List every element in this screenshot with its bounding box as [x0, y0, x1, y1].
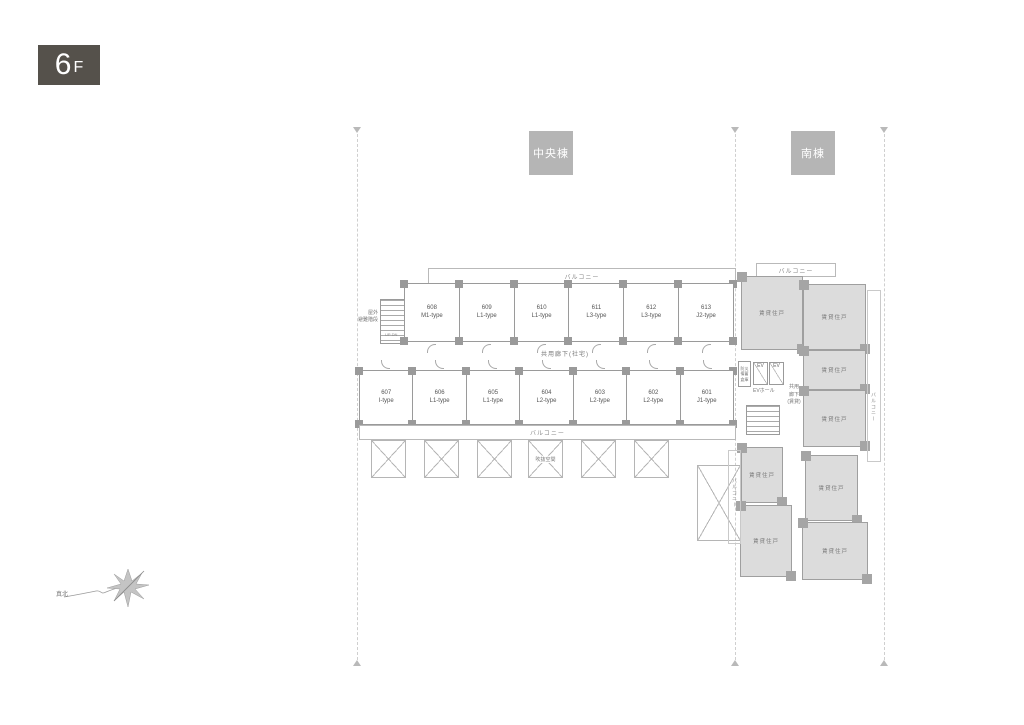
door-arc-icon — [482, 344, 491, 353]
elevator-2: EV — [769, 362, 784, 385]
unit-type: L1-type — [483, 398, 503, 405]
void-box: 吹抜空間 — [528, 440, 563, 478]
void-box — [634, 440, 669, 478]
unit-605: 605 L1-type — [466, 371, 519, 424]
door-arc-icon — [435, 360, 444, 369]
door-arc-icon — [381, 360, 390, 369]
unit-number: 611 — [592, 304, 602, 313]
rental-unit: 賃貸住戸 — [740, 505, 792, 577]
core-stairs — [746, 405, 780, 435]
floor-badge: 6 F — [38, 45, 100, 85]
central-top-balcony: バルコニー — [428, 268, 736, 284]
stairs-updn-label: UP DN — [385, 332, 397, 337]
door-arc-icon — [647, 344, 656, 353]
unit-type: L2-type — [536, 398, 556, 405]
guide-arrow-icon — [731, 127, 739, 133]
unit-number: 613 — [701, 304, 711, 313]
unit-610: 610 L1-type — [514, 284, 569, 341]
rental-unit: 賃貸住戸 — [802, 522, 868, 580]
unit-607: 607 I-type — [360, 371, 412, 424]
floor-plan-page: 6 F 中央棟 南棟 バルコニー 屋外 避難階段 UP DN 608 M1-ty… — [0, 0, 1024, 725]
unit-number: 608 — [427, 304, 437, 313]
unit-602: 602 L2-type — [626, 371, 679, 424]
void-box — [371, 440, 406, 478]
unit-type: I-type — [379, 398, 394, 405]
unit-609: 609 L1-type — [459, 284, 514, 341]
door-arc-icon — [703, 360, 712, 369]
unit-number: 609 — [482, 304, 492, 313]
rental-unit: 賃貸住戸 — [805, 455, 858, 521]
rental-unit: 賃貸住戸 — [803, 350, 866, 390]
unit-number: 610 — [537, 304, 547, 313]
section-label-central: 中央棟 — [529, 131, 573, 175]
unit-type: L1-type — [532, 313, 552, 320]
void-box — [424, 440, 459, 478]
unit-number: 603 — [595, 389, 605, 398]
floor-suffix: F — [73, 60, 83, 76]
storage-room: 防災 備蓄 倉庫 — [738, 361, 751, 387]
guide-line-left — [357, 134, 358, 660]
floor-number: 6 — [55, 50, 72, 80]
guide-arrow-icon — [880, 660, 888, 666]
guide-arrow-icon — [353, 127, 361, 133]
south-top-balcony: バルコニー — [756, 263, 836, 277]
unit-type: L1-type — [430, 398, 450, 405]
rental-unit: 賃貸住戸 — [803, 284, 866, 350]
central-bottom-balcony: バルコニー — [359, 425, 736, 440]
unit-number: 605 — [488, 389, 498, 398]
unit-type: L2-type — [643, 398, 663, 405]
void-box — [477, 440, 512, 478]
corridor-label: 共用廊下(社宅) — [541, 349, 589, 358]
unit-type: J2-type — [696, 313, 716, 320]
ev-hall-label: EVホール — [753, 387, 775, 394]
guide-arrow-icon — [880, 127, 888, 133]
unit-604: 604 L2-type — [519, 371, 572, 424]
door-arc-icon — [649, 360, 658, 369]
balcony-label-vertical: バルコニー — [731, 478, 738, 508]
door-arc-icon — [592, 344, 601, 353]
unit-number: 612 — [646, 304, 656, 313]
unit-number: 604 — [541, 389, 551, 398]
south-right-balcony — [867, 290, 881, 462]
unit-613: 613 J2-type — [678, 284, 733, 341]
elevator-1: EV — [753, 362, 768, 385]
void-label: 吹抜空間 — [534, 456, 556, 463]
unit-type: L1-type — [477, 313, 497, 320]
unit-type: L3-type — [641, 313, 661, 320]
unit-type: M1-type — [421, 313, 443, 320]
central-bottom-row: 607 I-type 606 L1-type 605 L1-type 604 L… — [359, 370, 734, 425]
true-north-label: 真北 — [56, 589, 68, 598]
balcony-label: バルコニー — [779, 266, 814, 275]
unit-number: 607 — [381, 389, 391, 398]
door-arc-icon — [488, 360, 497, 369]
section-label-south: 南棟 — [791, 131, 835, 175]
rental-unit: 賃貸住戸 — [741, 447, 783, 503]
balcony-label: バルコニー — [530, 428, 565, 437]
balcony-label-vertical: バルコニー — [870, 392, 877, 422]
unit-601: 601 J1-type — [680, 371, 733, 424]
central-top-row: 608 M1-type 609 L1-type 610 L1-type 611 … — [404, 283, 734, 342]
rental-unit: 賃貸住戸 — [741, 276, 803, 350]
unit-606: 606 L1-type — [412, 371, 465, 424]
void-box — [581, 440, 616, 478]
unit-603: 603 L2-type — [573, 371, 626, 424]
unit-type: L2-type — [590, 398, 610, 405]
unit-type: J1-type — [697, 398, 717, 405]
guide-arrow-icon — [731, 660, 739, 666]
door-arc-icon — [702, 344, 711, 353]
door-arc-icon — [542, 360, 551, 369]
unit-type: L3-type — [586, 313, 606, 320]
guide-line-right — [884, 134, 885, 660]
unit-611: 611 L3-type — [568, 284, 623, 341]
unit-612: 612 L3-type — [623, 284, 678, 341]
unit-608: 608 M1-type — [405, 284, 459, 341]
rental-unit: 賃貸住戸 — [803, 390, 866, 447]
unit-number: 602 — [648, 389, 658, 398]
door-arc-icon — [427, 344, 436, 353]
guide-arrow-icon — [353, 660, 361, 666]
unit-number: 601 — [702, 389, 712, 398]
door-arc-icon — [596, 360, 605, 369]
guide-line-middle — [735, 134, 736, 660]
unit-number: 606 — [435, 389, 445, 398]
evacuation-stairs-label: 屋外 避難階段 — [340, 310, 378, 324]
